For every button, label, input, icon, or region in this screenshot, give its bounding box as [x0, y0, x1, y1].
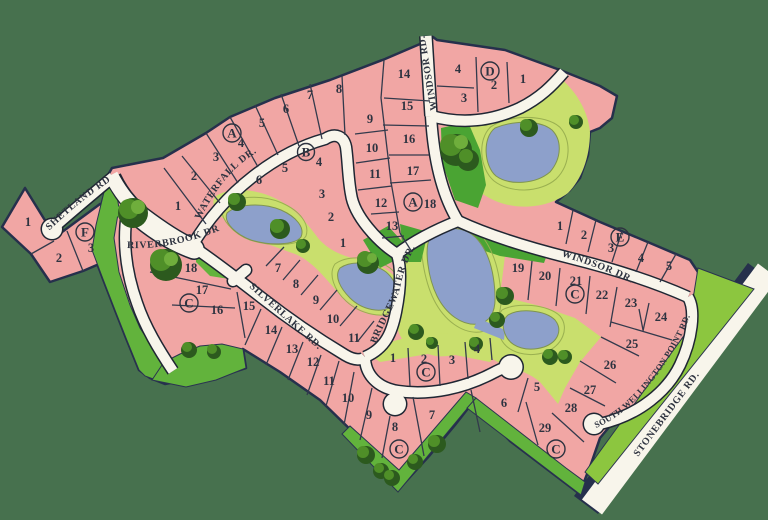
svg-text:27: 27: [584, 383, 597, 397]
svg-text:A: A: [408, 195, 418, 210]
svg-text:5: 5: [666, 259, 672, 273]
svg-text:C: C: [184, 296, 193, 311]
svg-text:18: 18: [424, 197, 437, 211]
svg-text:15: 15: [401, 99, 414, 113]
svg-text:11: 11: [369, 167, 381, 181]
svg-text:1: 1: [340, 236, 346, 250]
svg-text:F: F: [81, 225, 89, 240]
svg-text:10: 10: [366, 141, 379, 155]
svg-text:13: 13: [386, 219, 399, 233]
svg-text:D: D: [485, 64, 494, 79]
svg-text:C: C: [570, 287, 579, 302]
svg-text:C: C: [394, 442, 403, 457]
svg-text:18: 18: [185, 261, 198, 275]
svg-text:10: 10: [342, 391, 355, 405]
svg-text:7: 7: [429, 408, 435, 422]
svg-text:3: 3: [449, 353, 455, 367]
svg-text:6: 6: [501, 396, 507, 410]
svg-text:8: 8: [392, 420, 398, 434]
svg-text:15: 15: [243, 299, 256, 313]
svg-text:4: 4: [474, 342, 481, 356]
svg-text:28: 28: [565, 401, 578, 415]
svg-text:10: 10: [327, 312, 340, 326]
svg-text:3: 3: [319, 187, 325, 201]
svg-text:22: 22: [596, 288, 609, 302]
svg-text:11: 11: [348, 331, 360, 345]
svg-text:29: 29: [539, 421, 552, 435]
svg-text:9: 9: [367, 112, 373, 126]
svg-text:3: 3: [88, 241, 94, 255]
svg-text:4: 4: [638, 251, 645, 265]
svg-text:12: 12: [307, 355, 320, 369]
svg-text:14: 14: [265, 323, 278, 337]
svg-text:1: 1: [175, 199, 181, 213]
svg-text:24: 24: [655, 310, 668, 324]
svg-text:12: 12: [375, 196, 388, 210]
svg-text:3: 3: [213, 150, 219, 164]
svg-text:2: 2: [56, 251, 62, 265]
svg-text:6: 6: [256, 173, 262, 187]
svg-text:B: B: [302, 145, 311, 160]
svg-text:16: 16: [211, 303, 224, 317]
svg-text:17: 17: [407, 164, 420, 178]
svg-text:13: 13: [286, 342, 299, 356]
svg-text:5: 5: [534, 380, 540, 394]
svg-text:5: 5: [259, 116, 265, 130]
svg-text:9: 9: [366, 408, 372, 422]
svg-text:11: 11: [323, 374, 335, 388]
svg-text:2: 2: [581, 228, 587, 242]
svg-text:23: 23: [625, 296, 638, 310]
svg-text:A: A: [227, 126, 237, 141]
svg-text:5: 5: [282, 161, 288, 175]
svg-text:1: 1: [557, 219, 563, 233]
svg-text:6: 6: [283, 102, 289, 116]
svg-text:14: 14: [398, 67, 411, 81]
svg-text:1: 1: [390, 351, 396, 365]
svg-text:4: 4: [455, 62, 462, 76]
svg-text:8: 8: [336, 82, 342, 96]
svg-text:C: C: [421, 365, 430, 380]
svg-text:C: C: [551, 442, 560, 457]
svg-text:16: 16: [403, 132, 416, 146]
svg-text:9: 9: [313, 293, 319, 307]
svg-text:7: 7: [307, 88, 313, 102]
svg-text:3: 3: [461, 91, 467, 105]
svg-text:26: 26: [604, 358, 617, 372]
svg-text:7: 7: [275, 261, 281, 275]
svg-text:1: 1: [520, 72, 526, 86]
svg-text:8: 8: [293, 277, 299, 291]
svg-text:20: 20: [539, 269, 552, 283]
svg-text:19: 19: [512, 261, 525, 275]
svg-text:17: 17: [196, 283, 209, 297]
svg-text:1: 1: [25, 215, 31, 229]
svg-text:25: 25: [626, 337, 639, 351]
svg-text:4: 4: [316, 155, 323, 169]
svg-text:E: E: [616, 230, 625, 245]
svg-text:2: 2: [328, 210, 334, 224]
svg-text:2: 2: [191, 169, 197, 183]
